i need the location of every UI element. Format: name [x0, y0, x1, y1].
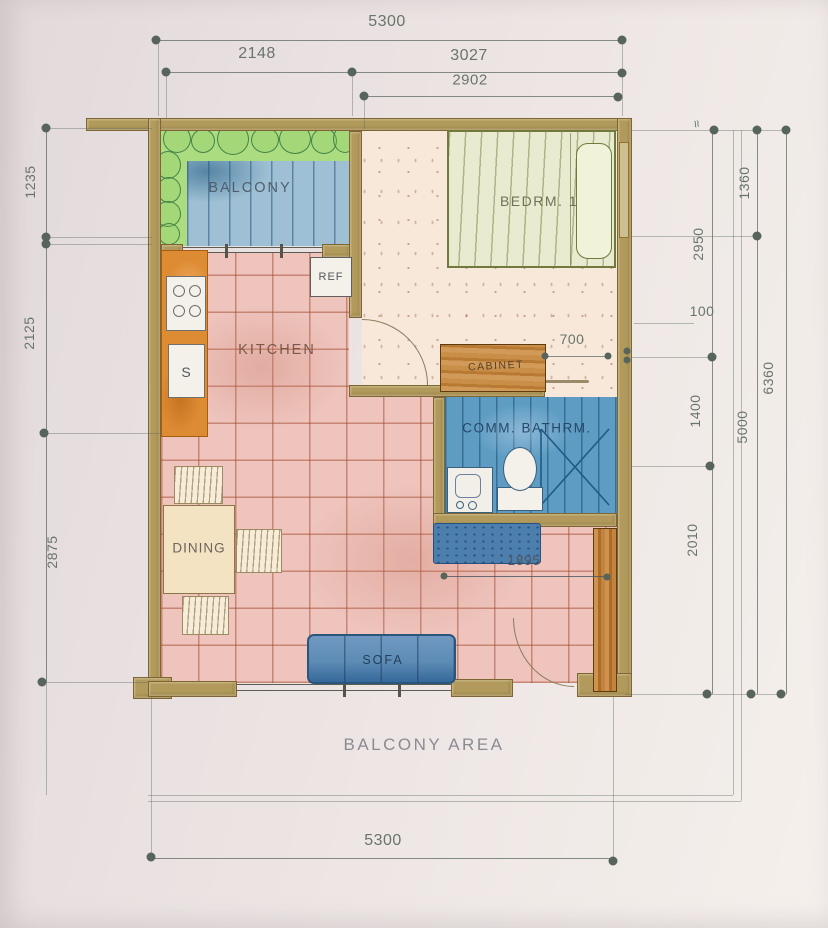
- plant-scribble-icon: [217, 131, 249, 155]
- dim-dot: [706, 462, 715, 471]
- extension-line: [46, 682, 47, 795]
- plant-scribble-icon: [161, 151, 181, 179]
- bathroom-door-leaf: [543, 380, 589, 383]
- shower-cross-icon: [540, 428, 610, 506]
- dining-chair: [236, 529, 282, 573]
- bedroom-window: [619, 142, 629, 238]
- bathroom-label: COMM. BATHRM.: [462, 421, 592, 436]
- dim-right-mid-inner: 1400: [687, 394, 703, 427]
- stove-burner-icon: [189, 305, 201, 317]
- slider-panel-tick: [225, 244, 228, 258]
- refrigerator-label: REF: [319, 271, 344, 283]
- dim-dot: [777, 690, 786, 699]
- dim-top-total: 5300: [368, 13, 406, 31]
- extension-line: [46, 237, 152, 238]
- dim-dot: [147, 853, 156, 862]
- dim-dot: [747, 690, 756, 699]
- dim-line: [786, 130, 787, 694]
- balcony-area-label: BALCONY AREA: [343, 735, 504, 755]
- bedroom-label: BEDRM. 1: [500, 193, 578, 209]
- dim-left-lower: 2875: [44, 535, 60, 568]
- dim-1895: 1895: [507, 552, 540, 568]
- dim-top-left: 2148: [238, 45, 276, 63]
- dim-dot: [609, 857, 618, 866]
- dim-line: [166, 72, 622, 73]
- balcony-decking: [187, 161, 351, 246]
- dim-line: [156, 40, 622, 41]
- dim-dot: [605, 353, 612, 360]
- extension-line: [46, 244, 152, 245]
- dim-line: [757, 130, 758, 694]
- extension-line: [364, 98, 365, 129]
- stove-burner-icon: [173, 285, 185, 297]
- extension-line: [151, 697, 152, 857]
- kitchen-sink-label: S: [181, 364, 190, 380]
- dim-right-lower-inner: 2010: [684, 523, 700, 556]
- dining-chair: [174, 466, 223, 504]
- extension-line: [613, 697, 614, 860]
- dim-700-line: [545, 356, 608, 357]
- dim-dot: [710, 126, 719, 135]
- balcony-area-edge: [148, 795, 733, 796]
- stove-burner-icon: [173, 305, 185, 317]
- bottom-wall-left: [148, 681, 237, 697]
- bottom-wall-mid: [451, 679, 513, 697]
- extension-line: [46, 128, 152, 129]
- dim-right-lower-outer: 5000: [734, 410, 750, 443]
- dim-700: 700: [560, 331, 585, 347]
- extension-line: [632, 466, 710, 467]
- balcony-edge-line: [733, 130, 734, 795]
- sofa-label: SOFA: [362, 653, 403, 667]
- dim-left-middle: 2125: [21, 316, 37, 349]
- sink-basin: [455, 474, 481, 498]
- dim-dot: [624, 357, 631, 364]
- dining-chair: [182, 596, 229, 635]
- dim-dot: [542, 353, 549, 360]
- dim-line: [46, 128, 47, 682]
- dim-bottom-total: 5300: [364, 832, 402, 850]
- dim-dot: [708, 353, 717, 362]
- plant-scribble-icon: [191, 131, 215, 153]
- dim-right-wall-thickness: 100: [690, 303, 715, 319]
- plant-scribble-icon: [251, 131, 279, 153]
- plant-scribble-icon: [161, 223, 180, 245]
- faucet-dot-icon: [456, 501, 464, 509]
- dim-dot: [441, 573, 448, 580]
- dim-1895-line: [444, 576, 607, 577]
- dim-line: [712, 130, 713, 694]
- extension-line: [352, 74, 353, 116]
- extension-line: [158, 42, 159, 116]
- dim-dot: [624, 348, 631, 355]
- balcony-area-edge: [148, 801, 741, 802]
- extension-line: [622, 44, 623, 116]
- floor-plan-sheet: S REF CABINET 700 COMM. BATHRM. 1895 DIN…: [0, 0, 828, 928]
- dim-dot: [753, 232, 762, 241]
- dim-line: [364, 96, 618, 97]
- break-mark-icon: ≈: [689, 119, 705, 130]
- slider-panel-tick: [280, 244, 283, 258]
- dim-dot: [604, 574, 611, 581]
- stove-burner-icon: [189, 285, 201, 297]
- open-door-leaf: [593, 528, 617, 692]
- balcony-edge-line: [741, 130, 742, 801]
- dim-dot: [782, 126, 791, 135]
- bathroom-left-wall: [433, 397, 445, 525]
- dim-right-upper-inner: 2950: [690, 227, 706, 260]
- bathroom-sink: [447, 467, 493, 513]
- extension-line: [634, 323, 694, 324]
- balcony-label: BALCONY: [208, 180, 291, 196]
- faucet-dot-icon: [468, 501, 477, 510]
- extension-line: [42, 682, 148, 683]
- dim-dot: [703, 690, 712, 699]
- left-wall: [148, 118, 161, 697]
- stove: [166, 276, 206, 331]
- toilet-bowl: [503, 447, 537, 491]
- extension-line: [166, 74, 167, 118]
- balcony-slider-track: [183, 247, 322, 248]
- dim-line: [151, 858, 613, 859]
- dim-top-right-inner: 2902: [452, 72, 487, 89]
- dim-right-total: 6360: [760, 361, 776, 394]
- plant-scribble-icon: [163, 131, 191, 153]
- kitchen-label: KITCHEN: [238, 342, 316, 358]
- dim-top-right: 3027: [450, 47, 488, 65]
- balcony-divider-stub-right: [322, 244, 351, 258]
- extension-line: [632, 357, 712, 358]
- dining-label: DINING: [172, 541, 225, 556]
- extension-line: [44, 433, 161, 434]
- bed-pillow: [576, 143, 612, 259]
- plant-scribble-icon: [279, 131, 311, 154]
- dim-right-upper-outer: 1360: [736, 166, 752, 199]
- plant-scribble-icon: [161, 177, 181, 203]
- dim-dot: [753, 126, 762, 135]
- dim-left-upper: 1235: [22, 165, 38, 198]
